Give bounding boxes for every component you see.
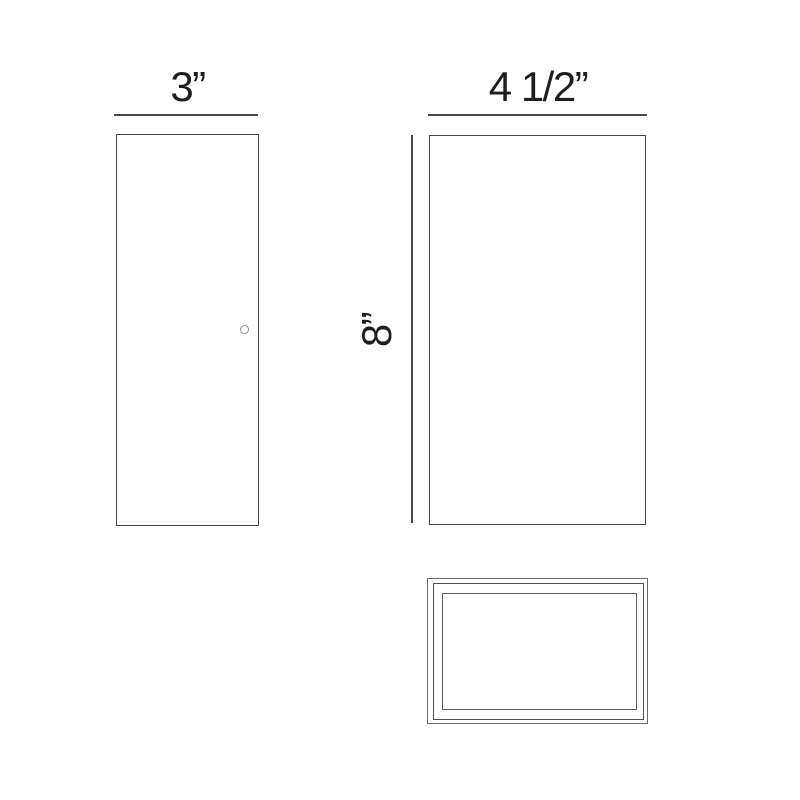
top-view-frame-outline (433, 583, 644, 720)
top-view-outer-outline (427, 578, 648, 724)
dimension-spec-drawing: 3” 4 1/2” 8” (0, 0, 800, 800)
side-height-dimension-line (411, 135, 413, 523)
side-width-dimension-line (428, 114, 647, 116)
front-view-outline (116, 134, 259, 526)
top-view (0, 0, 800, 800)
side-width-dimension-label: 4 1/2” (429, 66, 647, 108)
front-width-dimension-label: 3” (116, 66, 259, 108)
side-height-dimension-label: 8” (356, 313, 398, 347)
front-view: 3” (0, 0, 800, 800)
side-view-outline (429, 135, 646, 525)
top-view-lens-outline (442, 593, 637, 710)
set-screw-circle-icon (240, 325, 249, 334)
side-view: 4 1/2” 8” (0, 0, 800, 800)
front-width-dimension-line (114, 114, 258, 116)
